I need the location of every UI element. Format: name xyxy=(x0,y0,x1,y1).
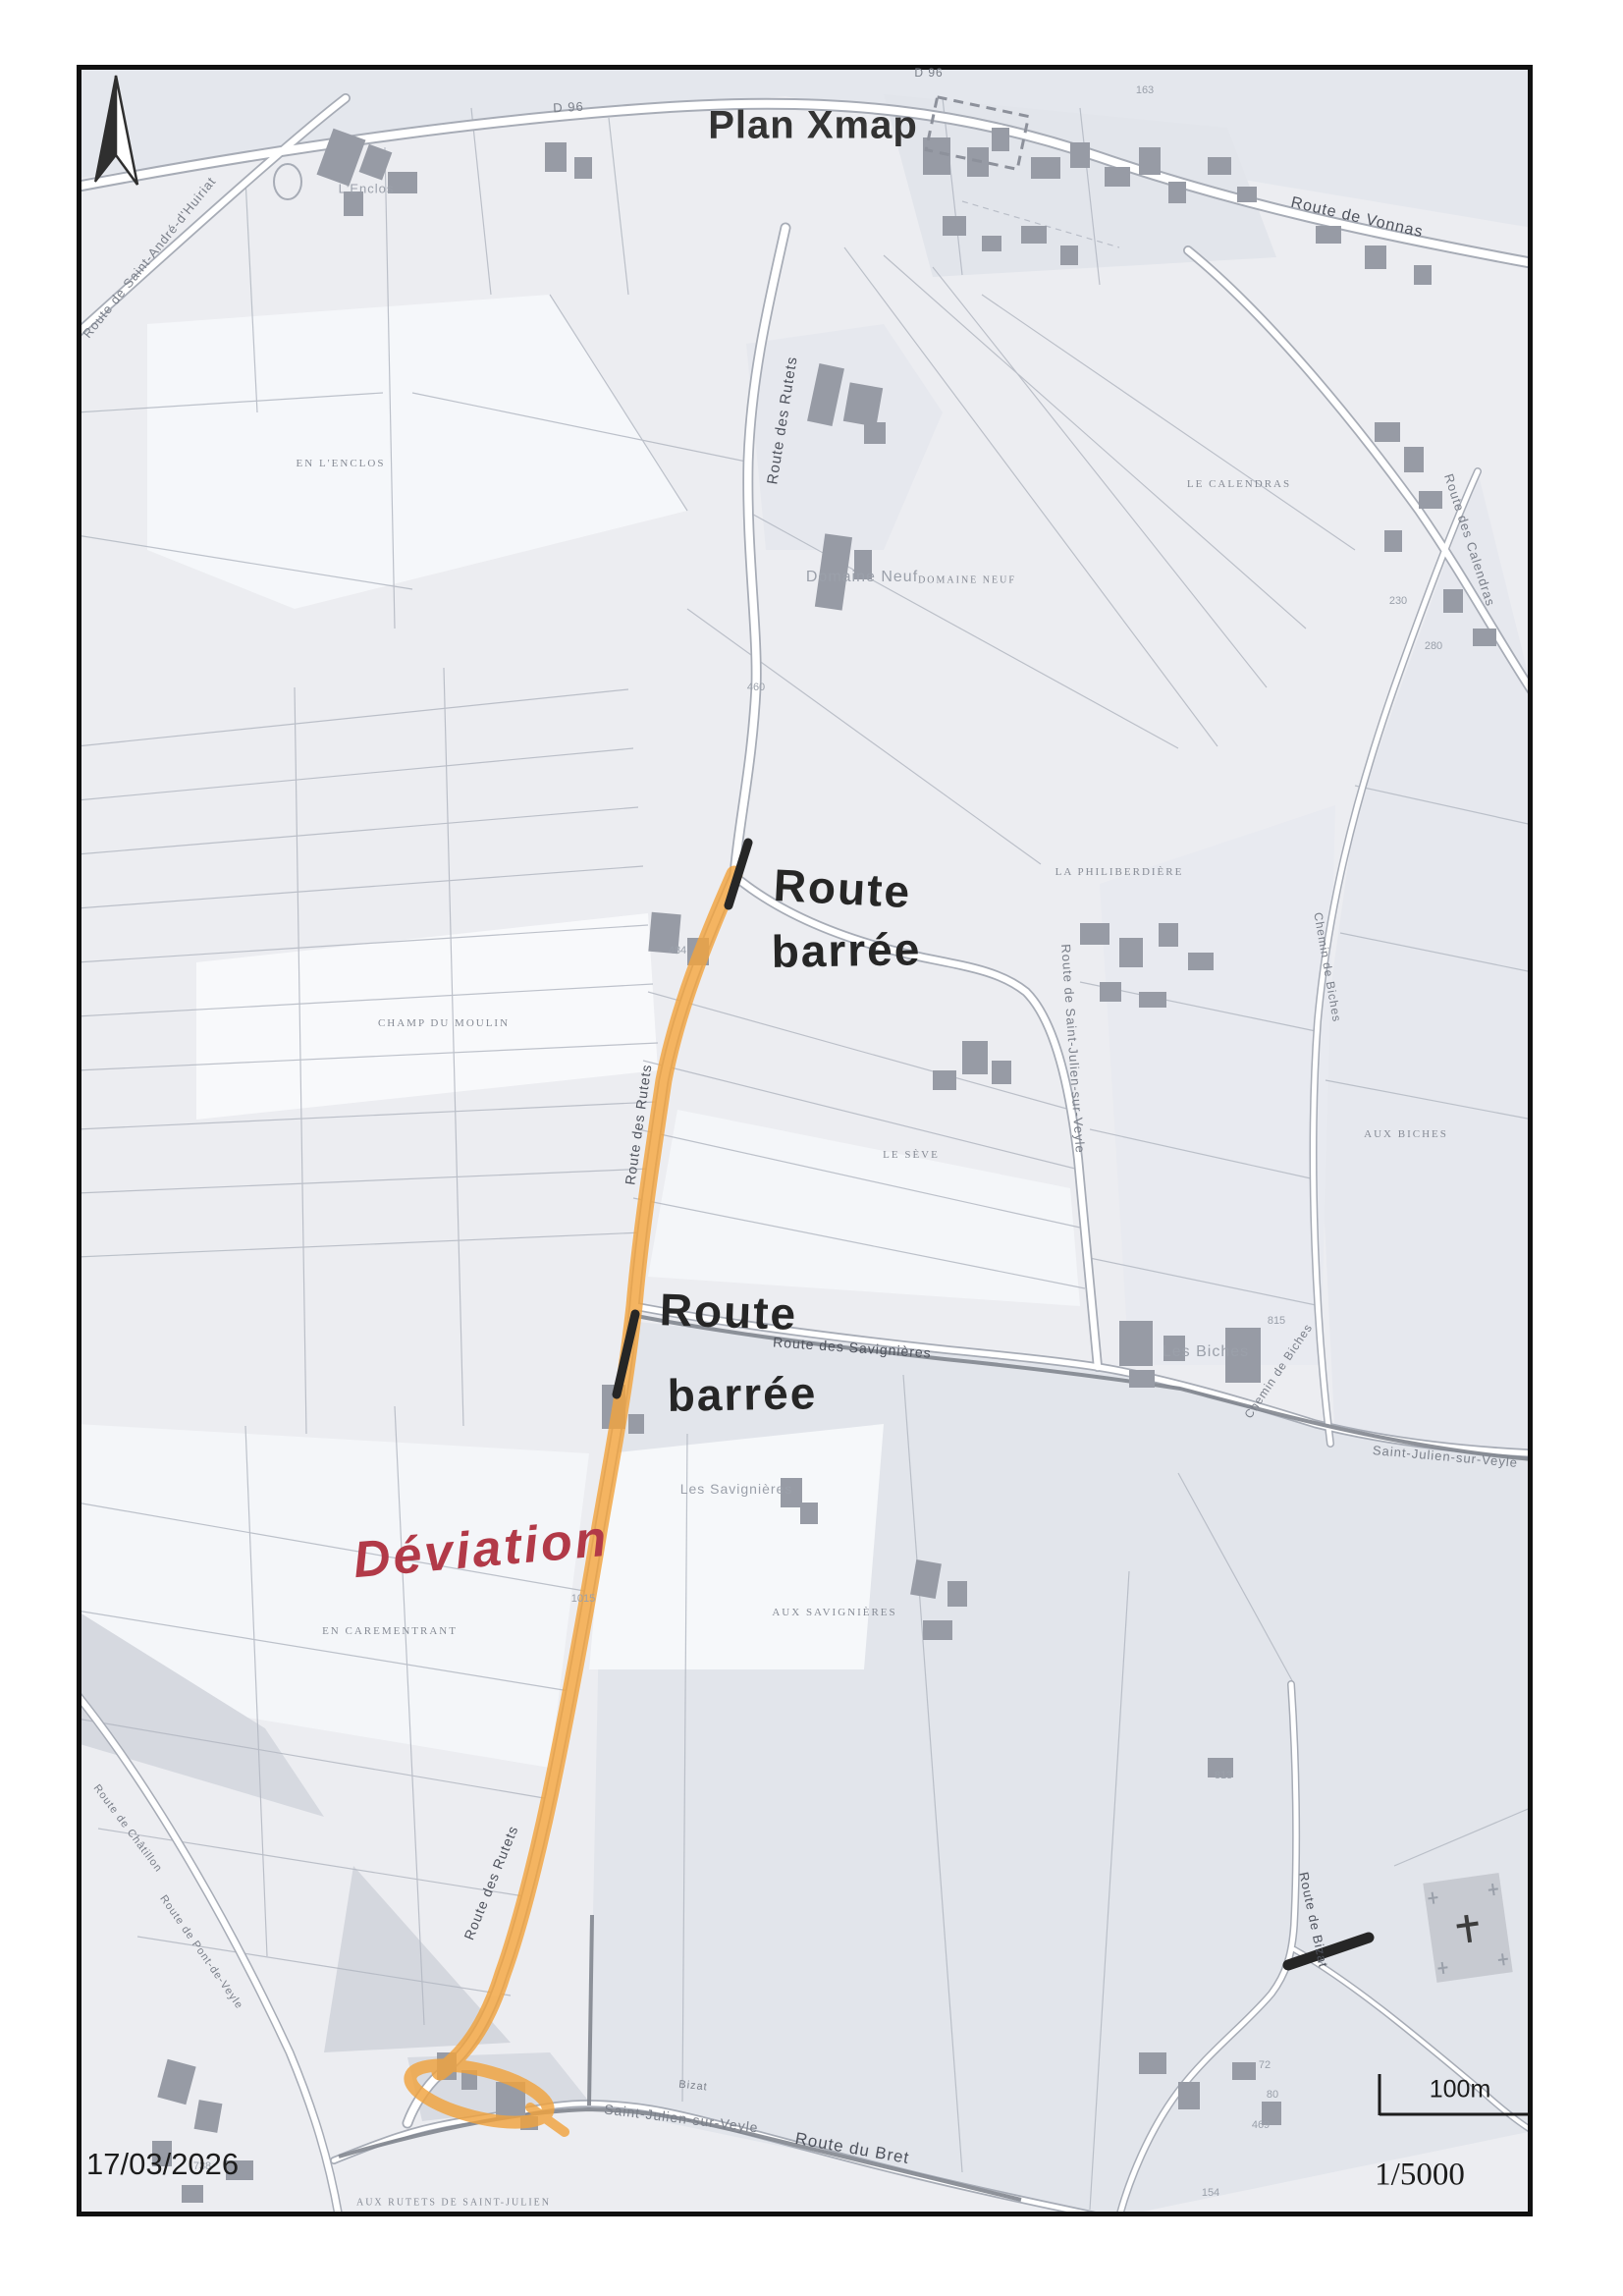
annotation-road-closed-2-line2: barrée xyxy=(667,1367,818,1422)
date-note: 17/03/2026 xyxy=(86,2147,239,2182)
scale-ratio: 1/5000 xyxy=(1375,2158,1465,2194)
annotation-road-closed-2-line1: Route xyxy=(659,1284,798,1340)
scale-bar-label: 100m xyxy=(1430,2076,1491,2105)
page-title: Plan Xmap xyxy=(708,104,918,148)
scanned-map-page: D 96D 96Route de VonnasRoute de Saint-An… xyxy=(0,0,1623,2296)
annotation-road-closed-1-line2: barrée xyxy=(771,923,922,978)
map-frame-border xyxy=(77,65,1533,2216)
annotation-road-closed-1-line1: Route xyxy=(773,859,913,918)
